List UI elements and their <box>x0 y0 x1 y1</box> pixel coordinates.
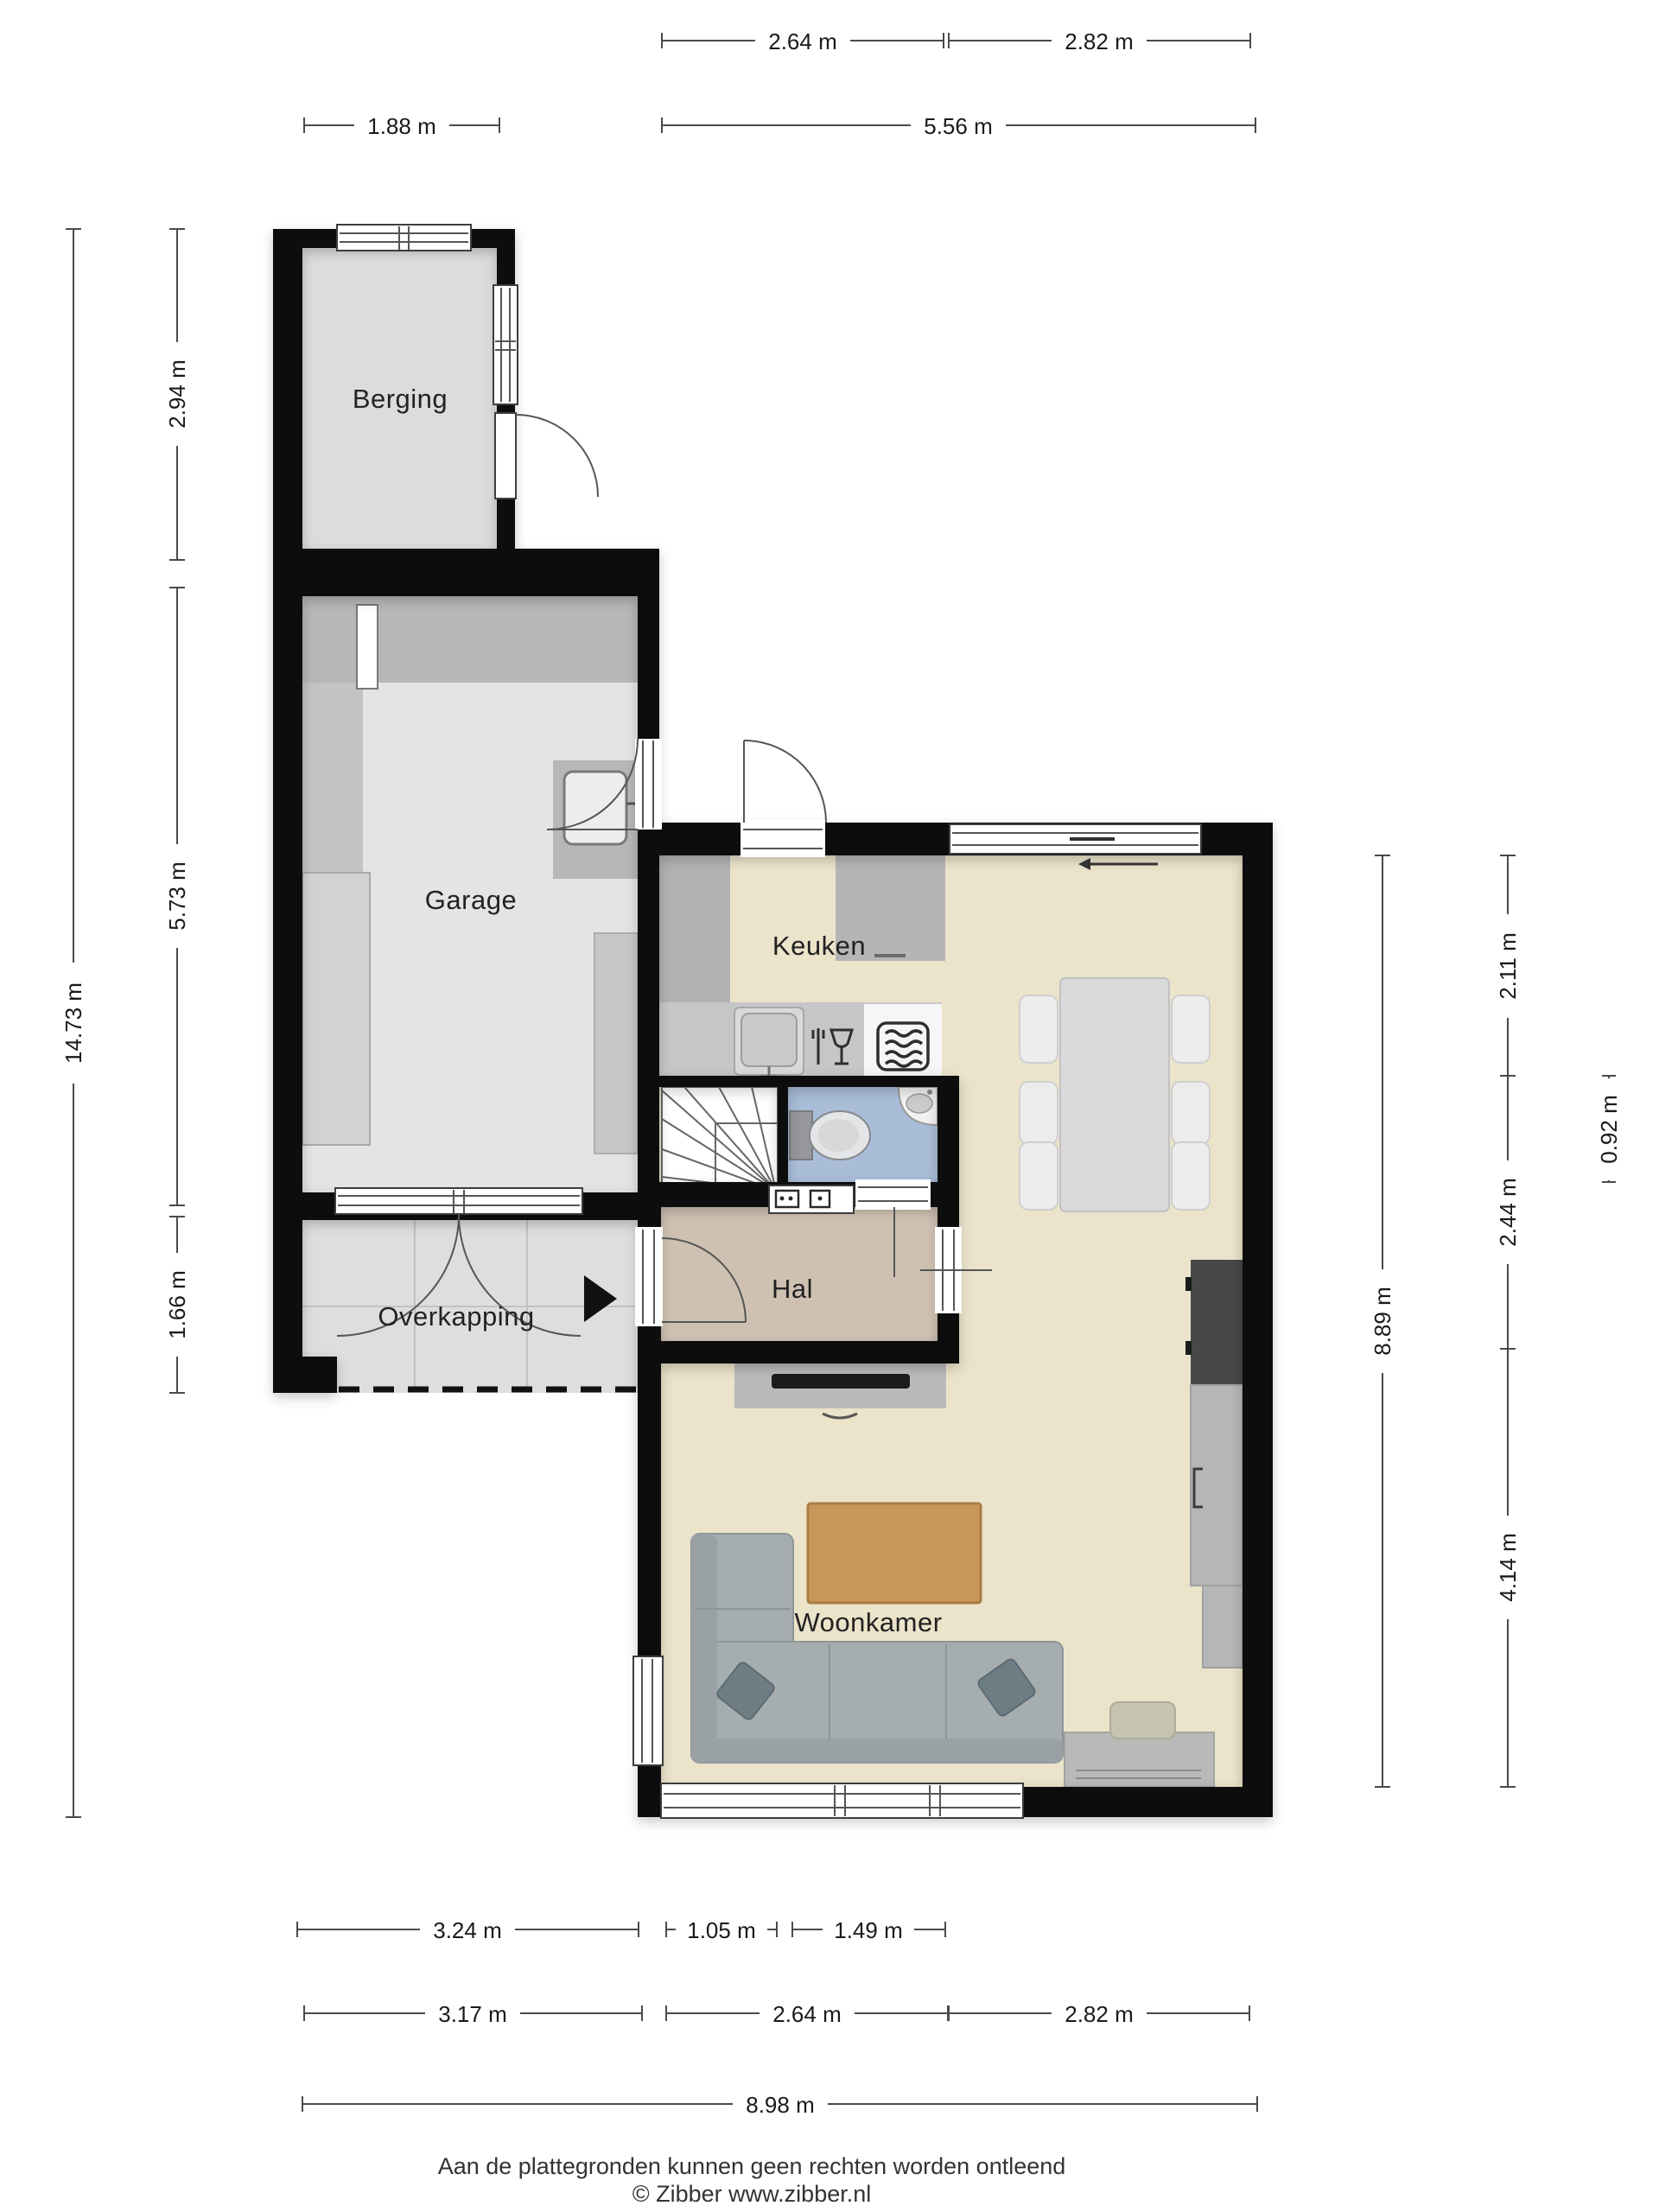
dim-top-2a: 1.88 m <box>304 110 499 141</box>
dining-chair <box>1020 1082 1058 1144</box>
dim-top-2b: 5.56 m <box>662 110 1255 141</box>
dim-label: 5.73 m <box>164 861 190 931</box>
wall-counter <box>659 1076 959 1087</box>
wall-stairs-toilet <box>778 1087 788 1195</box>
garage-cabinet-right <box>594 933 638 1154</box>
dim-top-1b: 2.82 m <box>949 25 1250 56</box>
dim-label: 8.98 m <box>746 2092 815 2118</box>
dim-label: 5.56 m <box>924 113 993 139</box>
dim-label: 2.64 m <box>768 29 837 54</box>
dim-label: 1.05 m <box>687 1917 756 1943</box>
dim-label: 1.49 m <box>834 1917 903 1943</box>
dim-label: 2.82 m <box>1065 2001 1134 2027</box>
dim-label: 2.82 m <box>1065 29 1134 54</box>
dim-bottom-1b: 1.05 m <box>666 1914 777 1945</box>
stairs <box>662 1087 778 1192</box>
desk-chair <box>1110 1702 1175 1738</box>
wall-garage-top <box>273 549 659 596</box>
berging-top-window <box>337 225 471 251</box>
sink-basin <box>741 1014 797 1066</box>
footer-credit: © Zibber www.zibber.nl <box>632 2181 872 2207</box>
bottom-window <box>661 1783 1023 1818</box>
dim-left-total: 14.73 m <box>58 229 89 1817</box>
dim-bottom-2a: 3.17 m <box>304 1998 642 2029</box>
dim-bottom-2b: 2.64 m <box>666 1998 948 2029</box>
kitchen-counter-column <box>659 855 730 1002</box>
dining-chair <box>1172 995 1210 1063</box>
dim-right-3: 4.14 m <box>1492 1349 1523 1787</box>
dim-top-1a: 2.64 m <box>662 25 944 56</box>
cabinet-dark <box>1191 1260 1243 1385</box>
dim-bottom-1c: 1.49 m <box>792 1914 945 1945</box>
dim-label: 3.24 m <box>433 1917 502 1943</box>
wardrobe <box>1191 1385 1243 1586</box>
dim-label: 2.44 m <box>1495 1178 1521 1247</box>
garage-niche <box>357 605 378 689</box>
west-window <box>633 1656 663 1765</box>
floorplan-drawing: Berging Garage Keuken Hal Overkapping Wo… <box>0 0 1659 2212</box>
dim-bottom-1a: 3.24 m <box>297 1914 639 1945</box>
washbasin-tap <box>927 1090 932 1095</box>
berging-door <box>495 413 598 499</box>
dim-bottom-2c: 2.82 m <box>949 1998 1249 2029</box>
room-label-woonkamer: Woonkamer <box>794 1607 942 1637</box>
dim-label: 1.88 m <box>367 113 436 139</box>
dining-chair <box>1172 1142 1210 1210</box>
garage-shelf-left-top <box>302 683 363 874</box>
floorplan-page: Berging Garage Keuken Hal Overkapping Wo… <box>0 0 1659 2212</box>
wall-canopy-stub <box>273 1357 337 1393</box>
dim-left-3: 1.66 m <box>162 1217 193 1393</box>
garage-workbench <box>302 596 638 683</box>
meter-cabinet <box>769 1185 854 1213</box>
dining-chair <box>1172 1082 1210 1144</box>
dim-label: 14.73 m <box>60 982 86 1064</box>
room-label-berging: Berging <box>353 384 448 414</box>
wall-hal-south <box>638 1341 959 1363</box>
garage-cabinet-left <box>302 873 370 1145</box>
cabinet-handle <box>1185 1341 1192 1355</box>
dim-label: 8.89 m <box>1370 1287 1395 1356</box>
dim-label: 3.17 m <box>438 2001 507 2027</box>
footer: Aan de plattegronden kunnen geen rechten… <box>438 2153 1066 2207</box>
dim-left-1: 2.94 m <box>162 229 193 560</box>
dim-label: 2.64 m <box>772 2001 842 2027</box>
dining-chair <box>1020 1142 1058 1210</box>
wall-garage-right <box>638 588 659 1197</box>
dim-right-toilet: 0.92 m <box>1593 1076 1624 1182</box>
tv <box>772 1374 910 1389</box>
berging-right-window <box>493 285 518 404</box>
wardrobe-lower <box>1203 1586 1243 1668</box>
room-label-overkapping: Overkapping <box>378 1301 534 1332</box>
room-label-keuken: Keuken <box>772 931 866 961</box>
wc-bowl-inner <box>817 1119 859 1152</box>
dim-right-1: 2.11 m <box>1492 855 1523 1076</box>
dim-left-2: 5.73 m <box>162 588 193 1205</box>
back-door <box>741 741 826 857</box>
garage-washbasin <box>564 772 626 844</box>
wall-house-right <box>1243 823 1273 1817</box>
footer-disclaimer: Aan de plattegronden kunnen geen rechten… <box>438 2153 1066 2179</box>
dim-label: 2.94 m <box>164 359 190 429</box>
cabinet-handle <box>1185 1277 1192 1291</box>
dim-right-total: 8.89 m <box>1367 855 1398 1787</box>
dim-label: 4.14 m <box>1495 1533 1521 1602</box>
dim-bottom-total: 8.98 m <box>302 2088 1257 2120</box>
washbasin-bowl <box>906 1094 932 1113</box>
room-label-garage: Garage <box>425 885 517 915</box>
dim-label: 0.92 m <box>1596 1095 1622 1164</box>
dining-chair <box>1020 995 1058 1063</box>
dining-table <box>1060 978 1169 1211</box>
dim-label: 1.66 m <box>164 1270 190 1339</box>
dim-right-2: 2.44 m <box>1492 1076 1523 1349</box>
coffee-table <box>808 1503 981 1603</box>
room-label-hal: Hal <box>772 1274 813 1304</box>
dim-label: 2.11 m <box>1495 932 1521 1000</box>
